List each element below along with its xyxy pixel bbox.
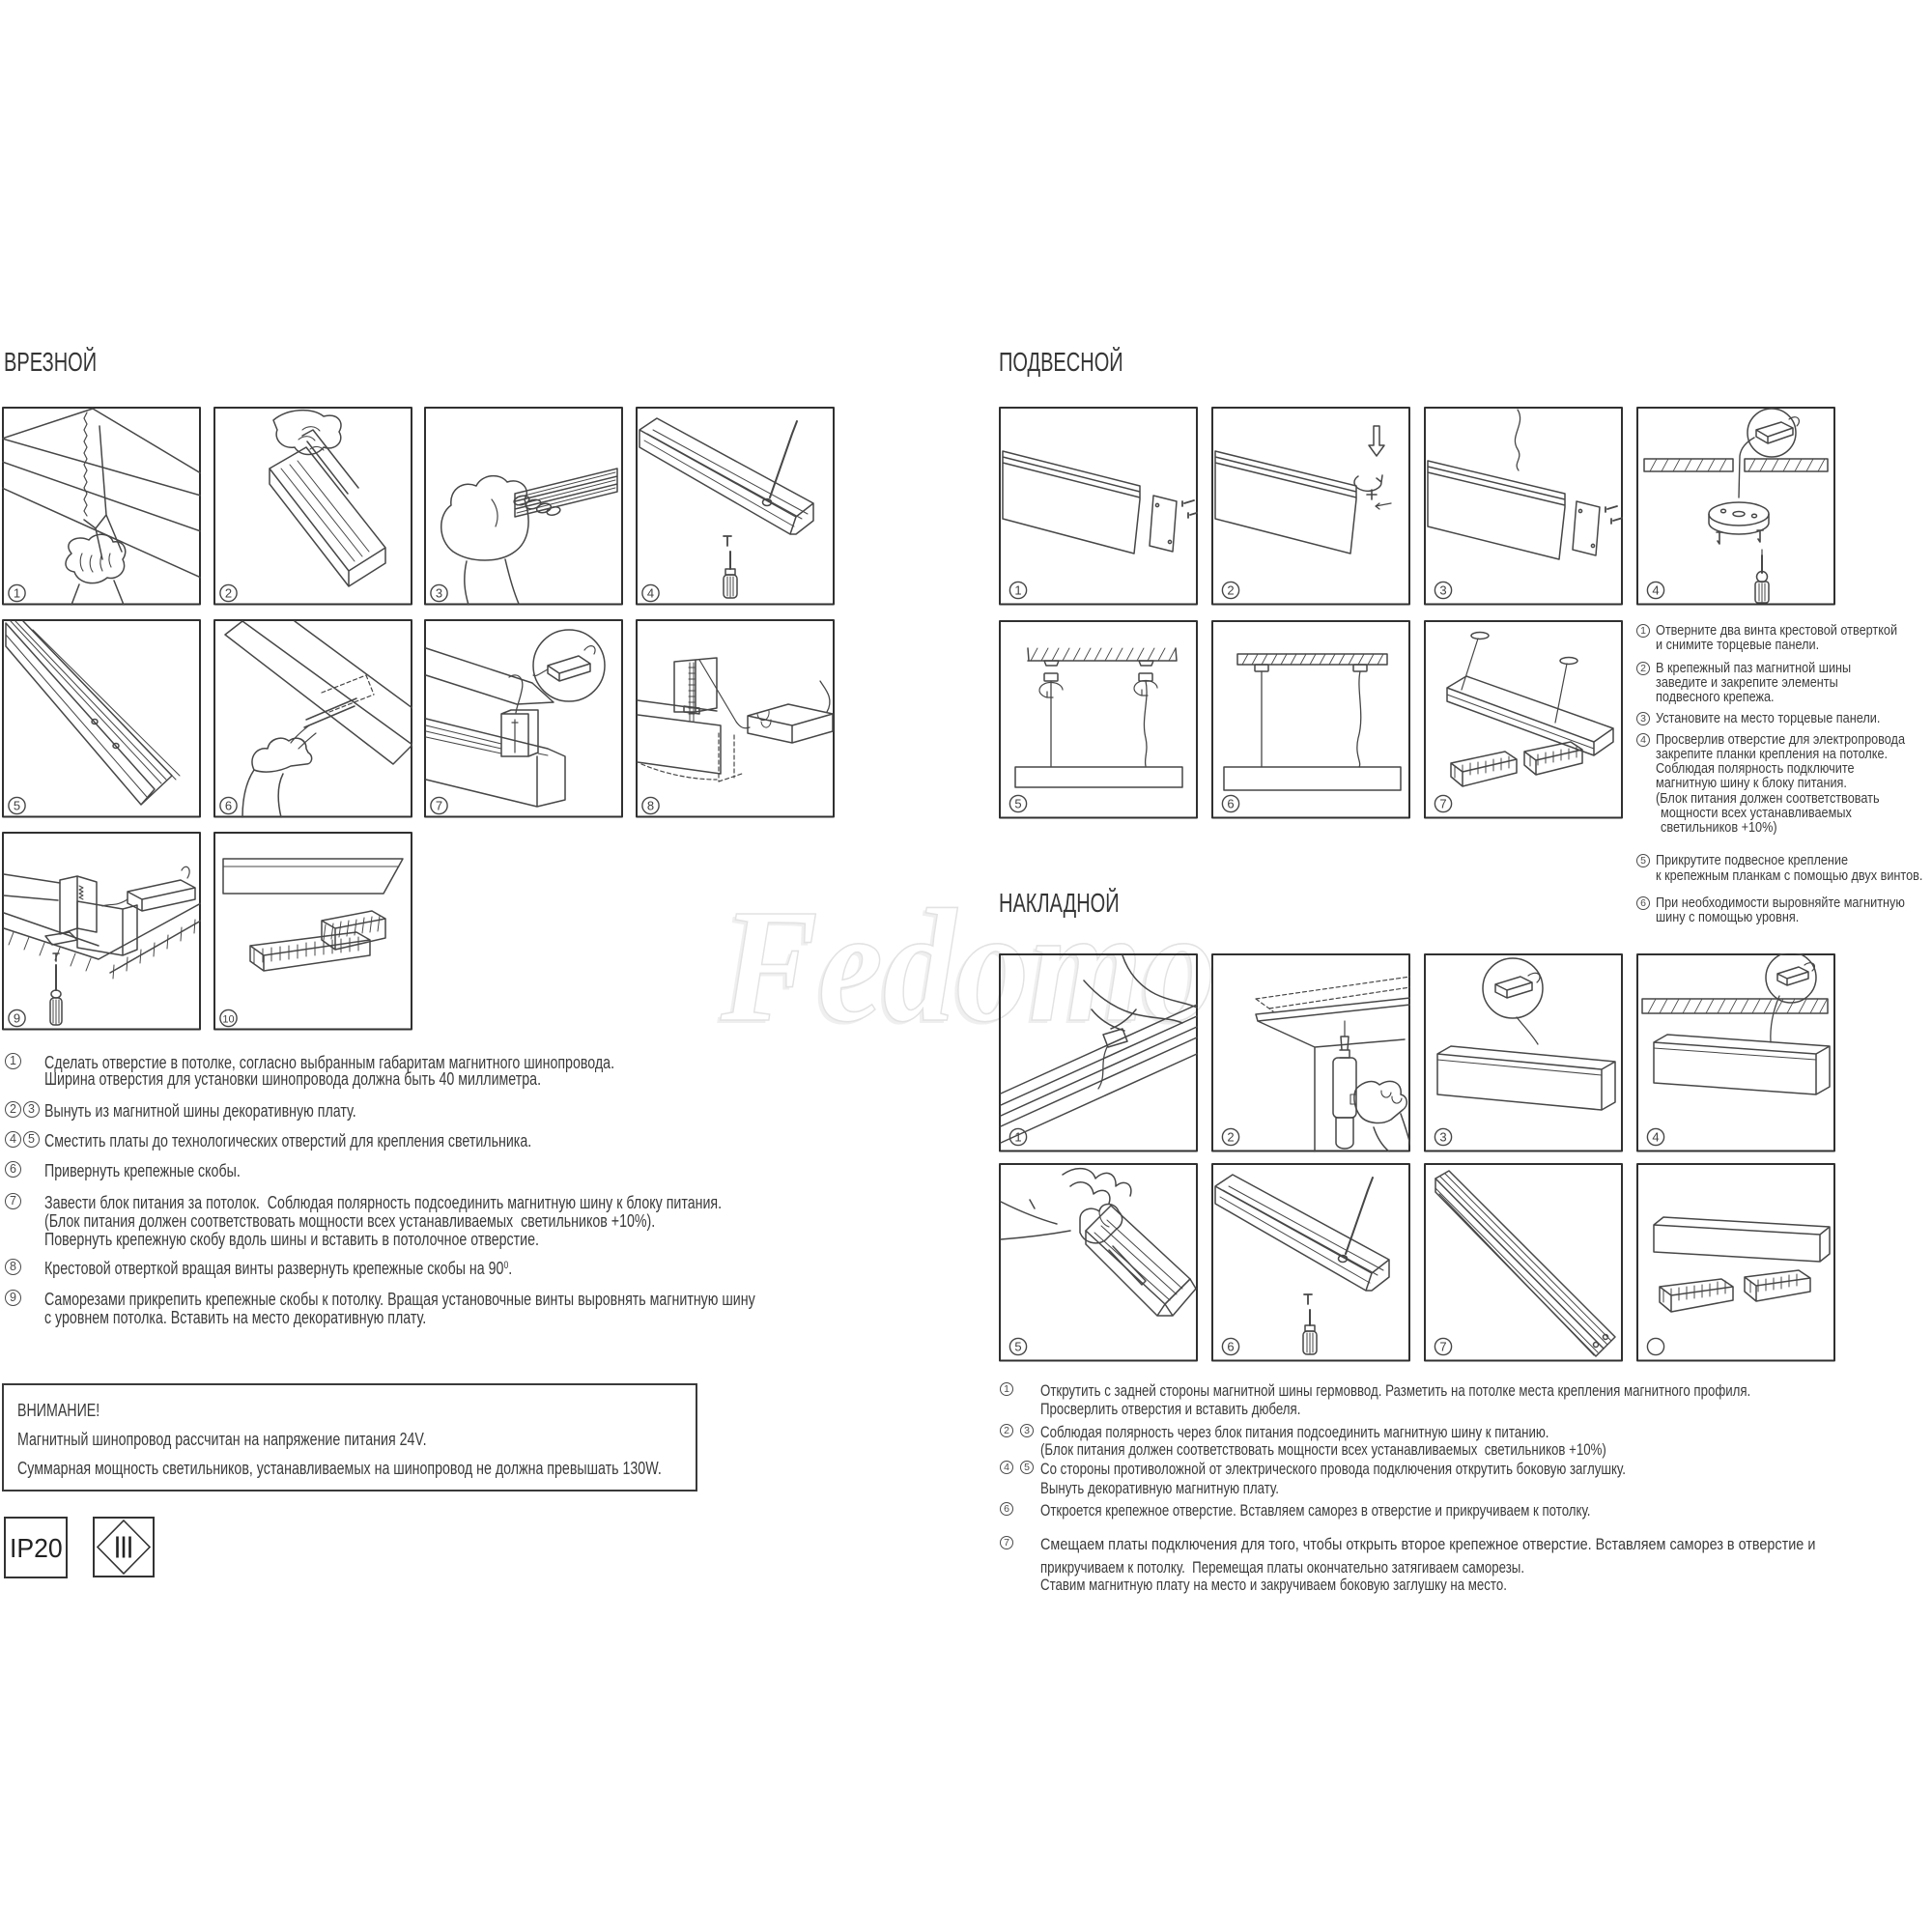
- svg-text:5: 5: [14, 799, 20, 813]
- svg-text:3: 3: [1439, 583, 1446, 598]
- svg-text:1: 1: [1014, 583, 1021, 598]
- svg-text:6: 6: [1227, 1340, 1234, 1354]
- svg-text:4: 4: [1652, 583, 1659, 598]
- svg-text:4: 4: [1652, 1130, 1659, 1145]
- svg-text:2: 2: [224, 586, 231, 601]
- svg-text:4: 4: [646, 586, 653, 601]
- svg-text:1: 1: [1014, 1130, 1021, 1145]
- svg-text:1: 1: [14, 586, 20, 601]
- svg-text:7: 7: [436, 799, 442, 813]
- svg-text:5: 5: [1014, 797, 1021, 811]
- svg-text:2: 2: [1227, 583, 1234, 598]
- svg-text:6: 6: [1227, 797, 1234, 811]
- svg-text:5: 5: [1014, 1340, 1021, 1354]
- svg-text:9: 9: [14, 1011, 20, 1026]
- svg-text:3: 3: [436, 586, 442, 601]
- svg-text:2: 2: [1227, 1130, 1234, 1145]
- svg-text:8: 8: [646, 799, 653, 813]
- svg-text:6: 6: [224, 799, 231, 813]
- svg-text:7: 7: [1439, 797, 1446, 811]
- svg-text:7: 7: [1439, 1340, 1446, 1354]
- svg-text:3: 3: [1439, 1130, 1446, 1145]
- svg-text:10: 10: [222, 1014, 234, 1026]
